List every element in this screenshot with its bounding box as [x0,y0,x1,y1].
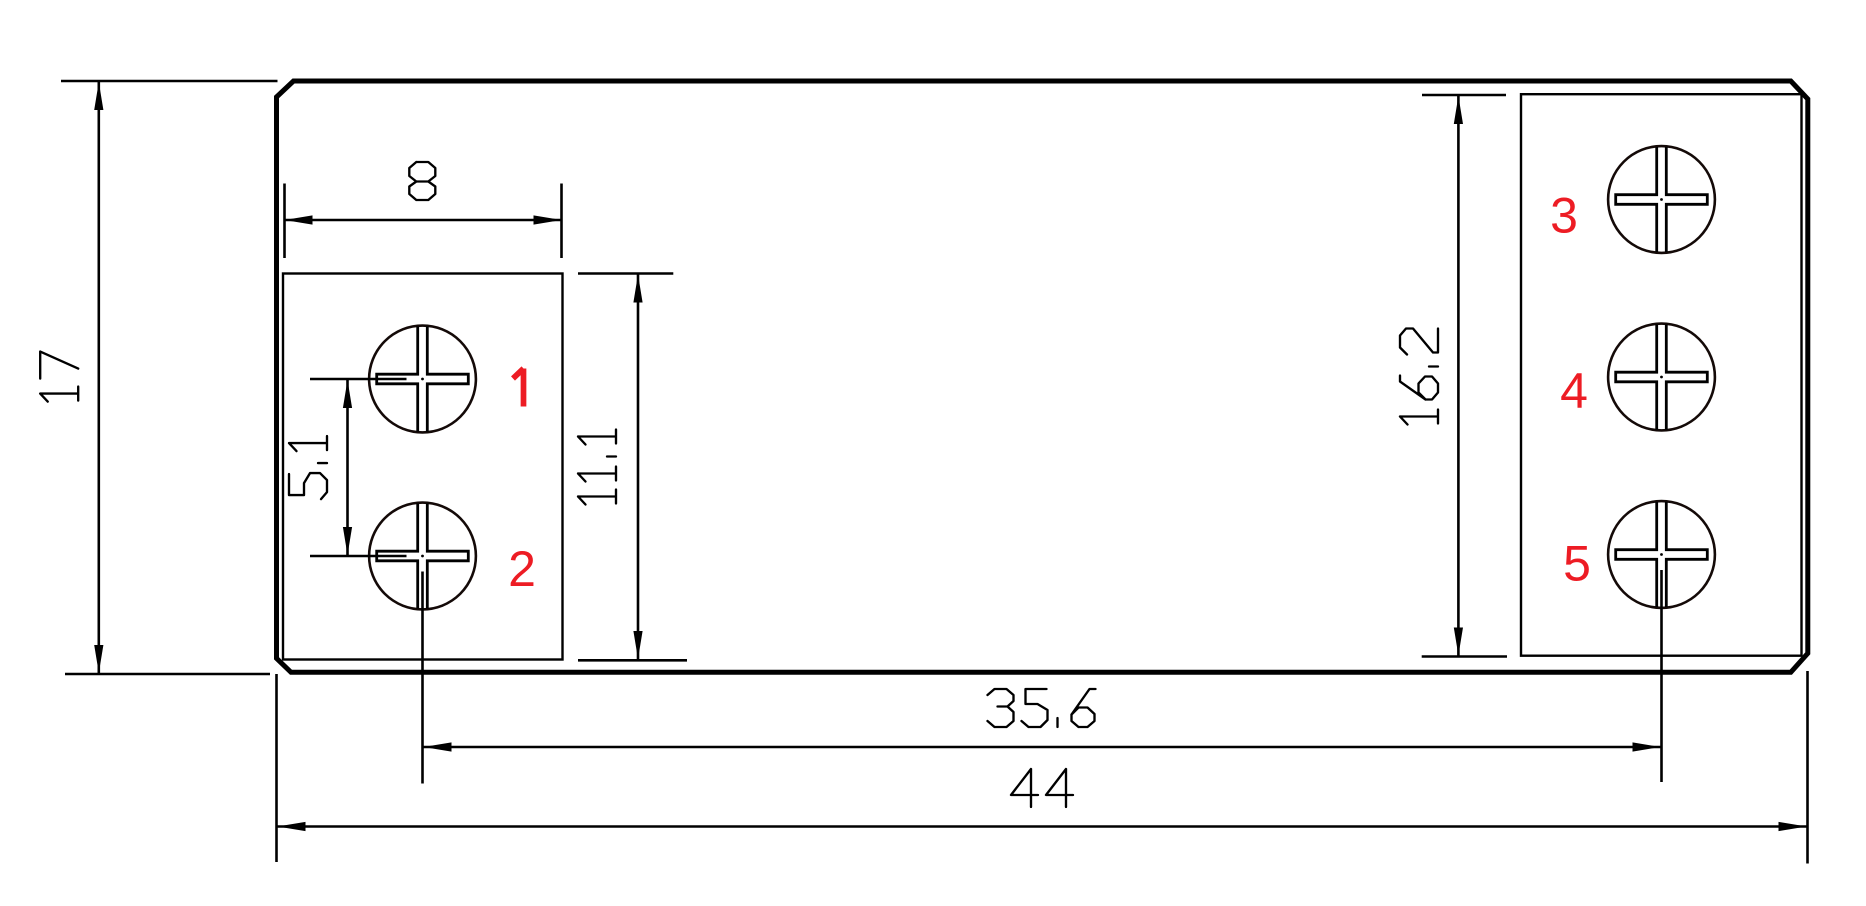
svg-text:2: 2 [508,541,536,597]
svg-text:4: 4 [1560,363,1588,419]
svg-text:5: 5 [1563,536,1591,592]
svg-text:3: 3 [1550,188,1578,244]
